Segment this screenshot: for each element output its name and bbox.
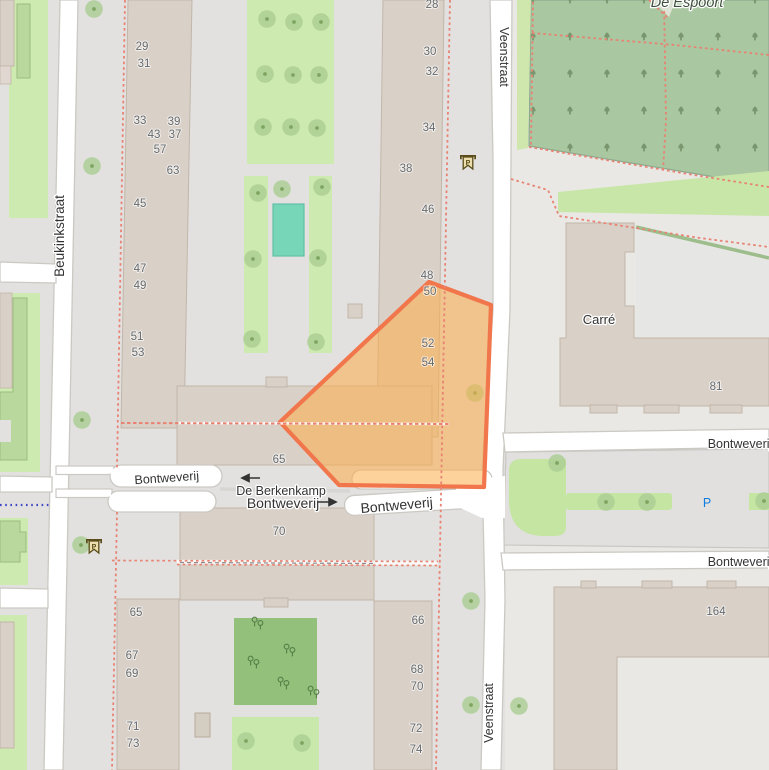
svg-text:71: 71	[127, 721, 140, 733]
svg-text:81: 81	[710, 381, 723, 393]
svg-text:30: 30	[424, 46, 437, 58]
svg-text:39: 39	[168, 116, 181, 128]
svg-text:63: 63	[167, 165, 180, 177]
svg-text:Bontweverij: Bontweverij	[708, 437, 769, 451]
svg-text:72: 72	[410, 723, 423, 735]
svg-text:52: 52	[422, 338, 435, 350]
svg-text:70: 70	[273, 526, 286, 538]
svg-text:57: 57	[154, 144, 167, 156]
svg-text:68: 68	[411, 664, 424, 676]
svg-text:45: 45	[134, 198, 147, 210]
svg-text:67: 67	[126, 650, 139, 662]
svg-text:38: 38	[400, 163, 413, 175]
svg-text:46: 46	[422, 204, 435, 216]
svg-text:De Berkenkamp: De Berkenkamp	[236, 484, 326, 498]
svg-text:43: 43	[148, 129, 161, 141]
svg-text:70: 70	[411, 681, 424, 693]
svg-text:Bontweverij: Bontweverij	[708, 555, 769, 569]
svg-text:49: 49	[134, 280, 147, 292]
svg-text:34: 34	[423, 122, 436, 134]
svg-text:Carré: Carré	[583, 312, 616, 327]
svg-text:51: 51	[131, 331, 144, 343]
svg-text:Veenstraat: Veenstraat	[482, 683, 496, 743]
svg-text:48: 48	[421, 270, 434, 282]
svg-text:164: 164	[706, 606, 726, 618]
svg-text:32: 32	[426, 66, 439, 78]
svg-text:54: 54	[422, 357, 435, 369]
svg-text:53: 53	[132, 347, 145, 359]
svg-text:31: 31	[138, 58, 151, 70]
svg-text:Beukinkstraat: Beukinkstraat	[52, 195, 67, 277]
svg-text:65: 65	[273, 454, 286, 466]
svg-text:66: 66	[412, 615, 425, 627]
svg-text:50: 50	[424, 286, 437, 298]
svg-text:P: P	[703, 496, 711, 510]
svg-text:Veenstraat: Veenstraat	[497, 27, 511, 87]
svg-text:29: 29	[136, 41, 149, 53]
svg-text:74: 74	[410, 744, 423, 756]
svg-text:47: 47	[134, 263, 147, 275]
svg-text:65: 65	[130, 607, 143, 619]
svg-text:De Espoort: De Espoort	[651, 0, 725, 11]
svg-text:28: 28	[426, 0, 439, 11]
svg-text:33: 33	[134, 115, 147, 127]
svg-text:69: 69	[126, 668, 139, 680]
svg-text:37: 37	[169, 129, 182, 141]
svg-text:73: 73	[127, 738, 140, 750]
